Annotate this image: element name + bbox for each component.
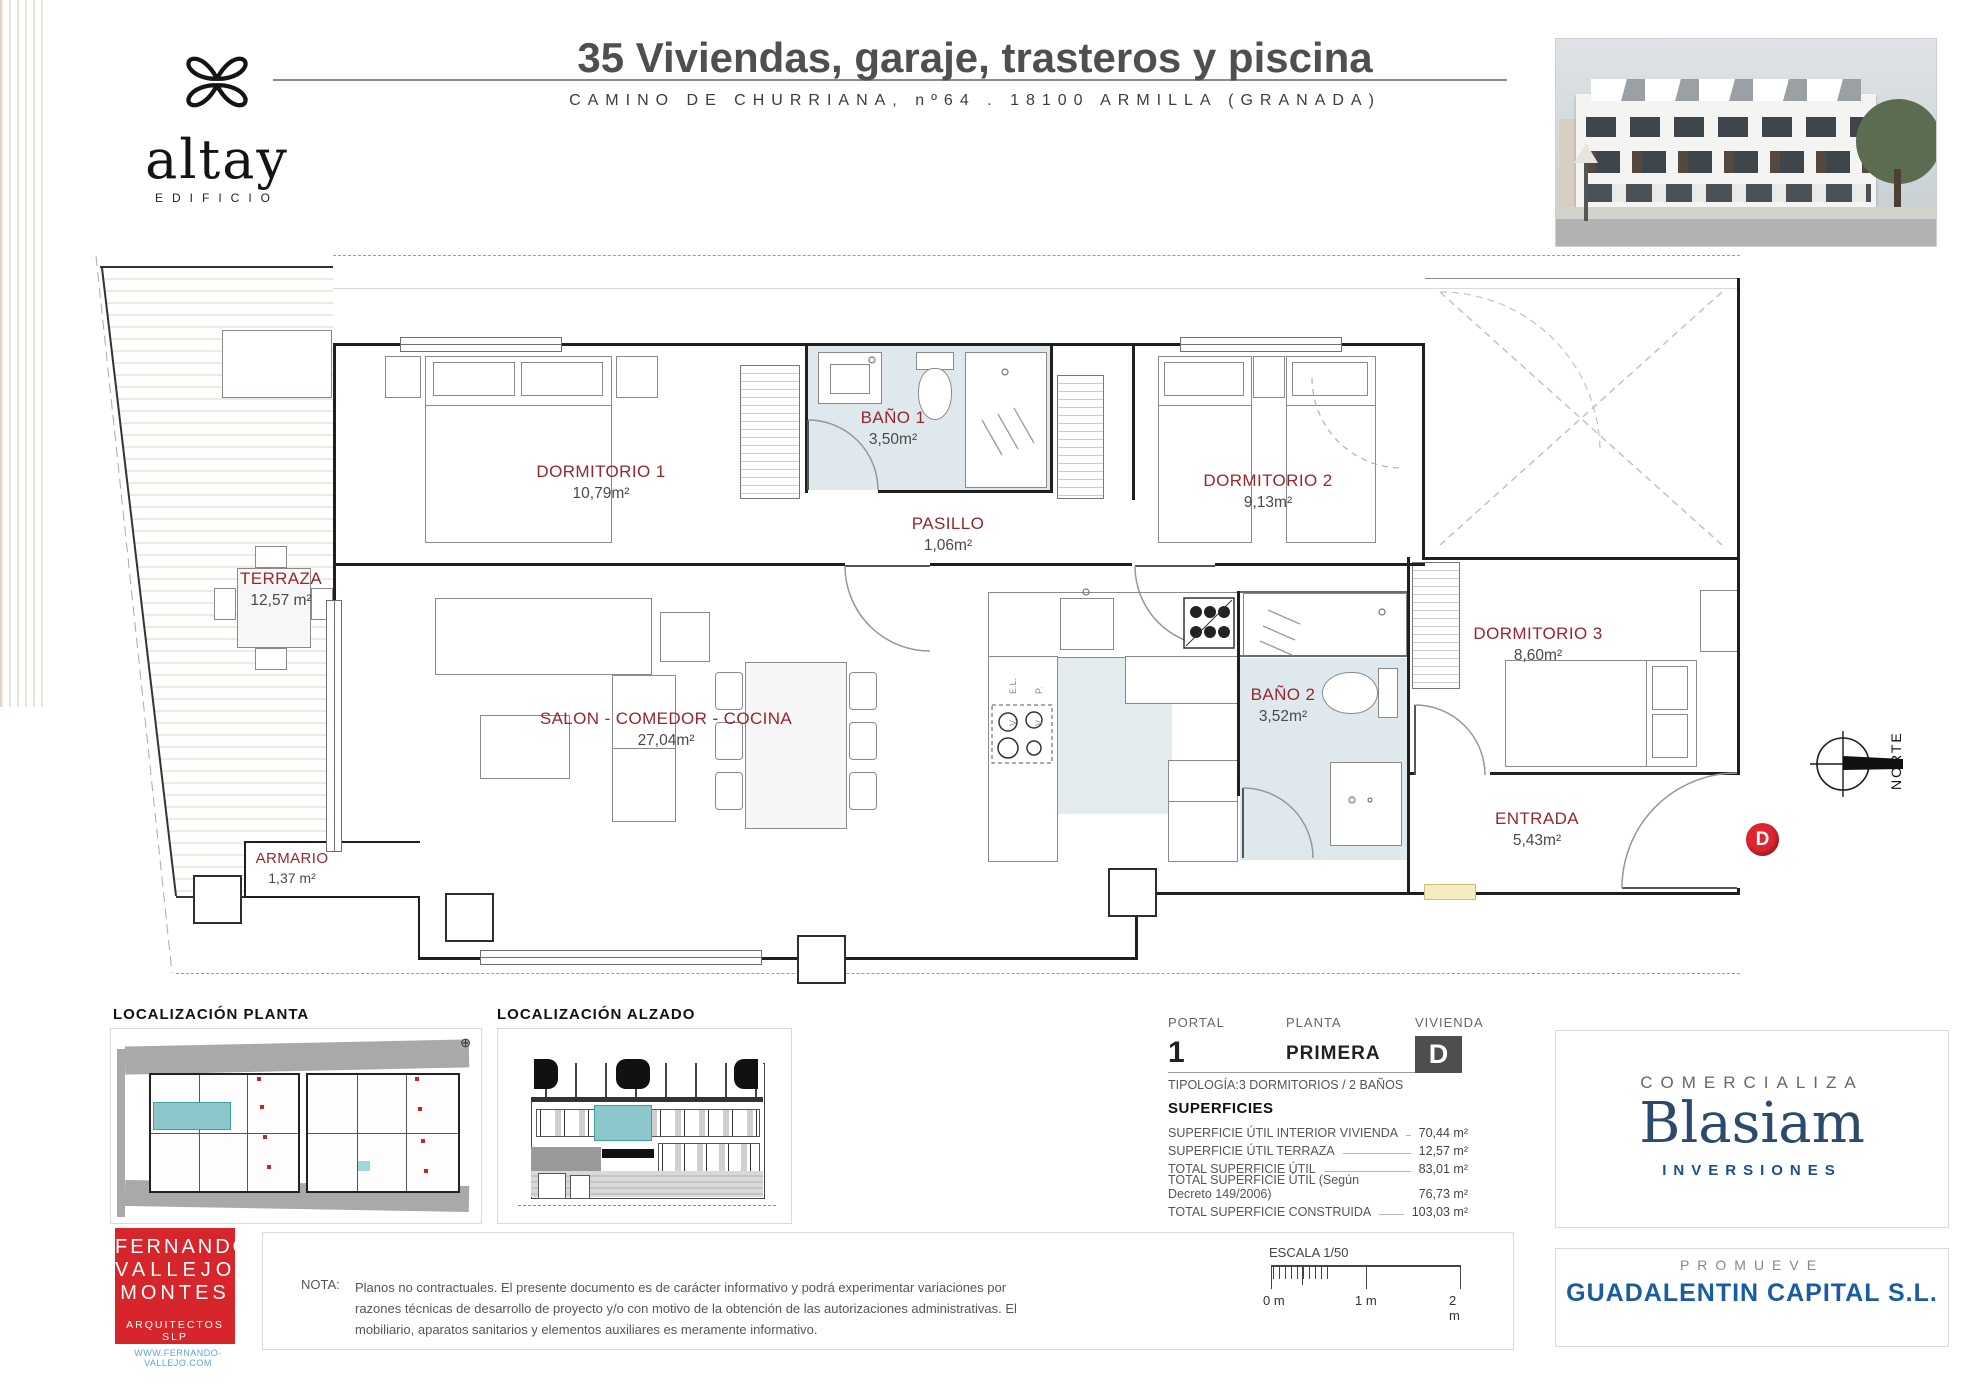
localizacion-alzado-drawing: [497, 1028, 792, 1224]
elevation-highlight-unit: [594, 1105, 652, 1141]
planta-value: PRIMERA: [1286, 1043, 1381, 1065]
localizacion-planta-title: LOCALIZACIÓN PLANTA: [113, 1006, 309, 1023]
kitchen-label: P.: [1034, 687, 1044, 694]
site-dot: [421, 1139, 425, 1143]
scale-tick-label: 1 m: [1355, 1293, 1377, 1308]
localizacion-planta-map: ⊕: [110, 1028, 482, 1224]
comercializa-brand-sub: INVERSIONES: [1556, 1162, 1948, 1179]
room-label-armario: ARMARIO 1,37 m²: [256, 849, 329, 888]
plan-sheet: altay EDIFICIO 35 Viviendas, garaje, tra…: [0, 0, 1967, 1391]
room-label-dormitorio3: DORMITORIO 3 8,60m²: [1473, 623, 1602, 667]
elevation-ground-line: [518, 1205, 776, 1206]
site-compass-icon: ⊕: [460, 1035, 471, 1051]
elevation-roof-shape: [734, 1059, 758, 1089]
promueve-label: PROMUEVE: [1556, 1257, 1948, 1273]
elevation-roof-shape: [534, 1059, 558, 1089]
site-dot: [424, 1169, 428, 1173]
site-dot: [257, 1077, 261, 1081]
elevation-gray-block: [531, 1147, 601, 1171]
scale-bar: 0 m 1 m 2 m: [1271, 1265, 1461, 1305]
elevation-slab: [531, 1097, 763, 1102]
room-label-salon: SALON - COMEDOR - COCINA 27,04m²: [540, 708, 792, 752]
nota-box: NOTA: Planos no contractuales. El presen…: [262, 1232, 1514, 1350]
comercializa-label: COMERCIALIZA: [1556, 1073, 1948, 1093]
north-label: NORTE: [1888, 731, 1904, 790]
site-highlight-unit: [153, 1102, 231, 1130]
superficie-row: SUPERFICIE ÚTIL TERRAZA12,57 m²: [1168, 1140, 1468, 1158]
elevation-roof-shape: [616, 1059, 650, 1089]
unit-marker: D: [1746, 823, 1779, 856]
elevation-door: [570, 1175, 590, 1199]
superficies-title: SUPERFICIES: [1168, 1100, 1274, 1117]
nota-label: NOTA:: [301, 1277, 340, 1292]
room-label-dormitorio1: DORMITORIO 1 10,79m²: [536, 461, 665, 505]
vivienda-label: VIVIENDA: [1415, 1015, 1484, 1030]
site-dot: [267, 1165, 271, 1169]
site-road-top: [125, 1039, 470, 1074]
architect-name-line: MONTES: [115, 1282, 235, 1305]
scale-tick-label: 0 m: [1263, 1293, 1285, 1308]
superficies-table: SUPERFICIE ÚTIL INTERIOR VIVIENDA70,44 m…: [1168, 1122, 1468, 1219]
architect-name-line: VALLEJO: [115, 1259, 235, 1282]
portal-value: 1: [1168, 1036, 1225, 1070]
planta-label: PLANTA: [1286, 1015, 1342, 1030]
site-building-b: [306, 1073, 460, 1193]
nota-text: Planos no contractuales. El presente doc…: [355, 1277, 1055, 1340]
elevation-sign-strip: [602, 1149, 654, 1158]
site-dot: [418, 1107, 422, 1111]
site-building-a: [149, 1073, 300, 1193]
superficie-row: SUPERFICIE ÚTIL INTERIOR VIVIENDA70,44 m…: [1168, 1122, 1468, 1140]
promueve-panel: PROMUEVE GUADALENTIN CAPITAL S.L.: [1555, 1248, 1949, 1347]
room-label-bano2: BAÑO 2 3,52m²: [1251, 684, 1316, 728]
architect-logo: FERNANDO VALLEJO MONTES ARQUITECTOS SLP: [115, 1228, 235, 1344]
kitchen-label: V.: [1008, 718, 1018, 726]
room-label-dormitorio2: DORMITORIO 2 9,13m²: [1203, 470, 1332, 514]
superficie-row: TOTAL SUPERFICIE CONSTRUIDA103,03 m²: [1168, 1201, 1468, 1219]
elevation-door: [538, 1173, 566, 1199]
site-dot: [415, 1077, 419, 1081]
site-dot: [260, 1105, 264, 1109]
superficie-row: TOTAL SUPERFICIE ÚTIL (Según Decreto 149…: [1168, 1183, 1468, 1201]
localizacion-alzado-title: LOCALIZACIÓN ALZADO: [497, 1006, 695, 1023]
room-label-bano1: BAÑO 1 3,50m²: [861, 407, 926, 451]
scale-tick-label: 2 m: [1449, 1293, 1461, 1323]
room-label-entrada: ENTRADA 5,43m²: [1495, 808, 1579, 852]
vivienda-value: D: [1415, 1036, 1462, 1073]
site-highlight-small: [358, 1161, 370, 1171]
site-road-left: [117, 1049, 125, 1217]
comercializa-panel: COMERCIALIZA Blasiam INVERSIONES: [1555, 1030, 1949, 1228]
kitchen-label: V.: [1034, 718, 1044, 726]
elevation-low-windows: [658, 1143, 760, 1173]
architect-website[interactable]: WWW.FERNANDO-VALLEJO.COM: [113, 1348, 243, 1368]
site-dot: [263, 1135, 267, 1139]
promotor-name: GUADALENTIN CAPITAL S.L.: [1556, 1279, 1948, 1308]
escala-label: ESCALA 1/50: [1269, 1245, 1349, 1260]
portal-label: PORTAL: [1168, 1015, 1225, 1030]
kitchen-label: E.L.: [1008, 678, 1018, 694]
room-label-pasillo: PASILLO 1,06m²: [912, 513, 984, 557]
comercializa-brand: Blasiam: [1556, 1095, 1948, 1154]
architect-name-line: FERNANDO: [115, 1236, 235, 1259]
room-label-terraza: TERRAZA 12,57 m²: [240, 568, 322, 612]
tipologia: TIPOLOGÍA:3 DORMITORIOS / 2 BAÑOS: [1168, 1078, 1403, 1092]
unit-info-panel: PORTAL 1 PLANTA PRIMERA VIVIENDA D TIPOL…: [1168, 1014, 1492, 1224]
architect-sub: ARQUITECTOS SLP: [115, 1319, 235, 1343]
